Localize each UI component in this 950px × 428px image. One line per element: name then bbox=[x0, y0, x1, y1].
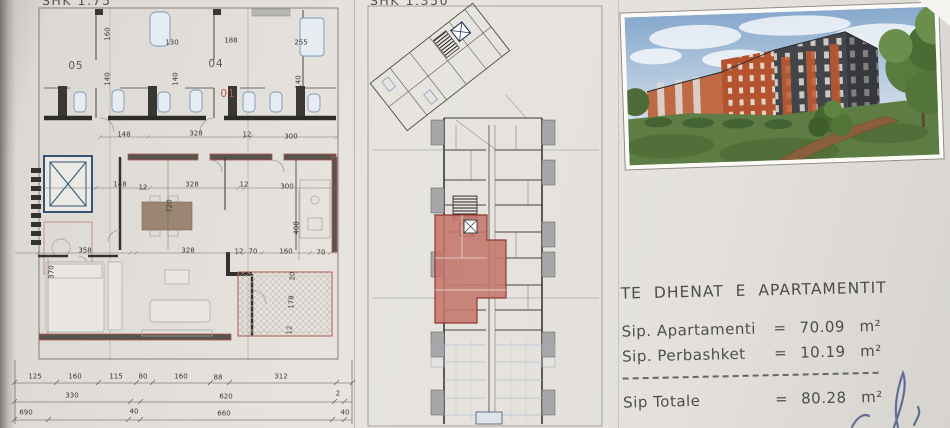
dimension-label: 12 bbox=[235, 249, 244, 256]
left-plan-annotations: 0504011601301882551401401401483281230014… bbox=[0, 0, 356, 428]
dimension-label: 328 bbox=[181, 248, 194, 255]
building-render-photo bbox=[619, 1, 944, 170]
dimension-label: 370 bbox=[49, 265, 56, 278]
info-row-apartamenti: Sip. Apartamenti = 70.09 m² bbox=[621, 315, 939, 340]
building-plan-panel bbox=[356, 0, 616, 428]
dimension-label: 88 bbox=[214, 375, 223, 382]
dimension-label: 160 bbox=[105, 27, 112, 40]
building-plan-drawing bbox=[356, 0, 616, 428]
dimension-label: 140 bbox=[173, 72, 180, 85]
dimension-label: 12 bbox=[287, 326, 294, 335]
room-label: 01 bbox=[220, 89, 235, 100]
highlighted-apartment bbox=[435, 215, 506, 323]
dimension-label: 148 bbox=[113, 182, 126, 189]
divider-dashed-line bbox=[623, 372, 879, 380]
info-value: 70.09 bbox=[799, 317, 855, 336]
sheet-fold-right bbox=[618, 0, 619, 428]
dimension-label: 660 bbox=[217, 411, 230, 418]
equals-sign: = bbox=[775, 390, 801, 409]
angled-wing bbox=[370, 3, 509, 130]
dimension-label: 140 bbox=[105, 72, 112, 85]
dimension-label: 300 bbox=[280, 184, 293, 191]
dimension-label: 690 bbox=[19, 410, 32, 417]
dimension-label: 40 bbox=[130, 409, 139, 416]
dimension-label: 70 bbox=[317, 250, 326, 257]
dimension-label: 620 bbox=[219, 394, 232, 401]
dimension-label: 130 bbox=[165, 40, 178, 47]
dimension-label: 80 bbox=[139, 374, 148, 381]
info-label: Sip. Apartamenti bbox=[621, 319, 773, 340]
dimension-label: 188 bbox=[224, 38, 237, 45]
sheet-fold-left bbox=[354, 0, 355, 428]
equals-sign: = bbox=[774, 344, 800, 363]
page-edge-shadow bbox=[0, 0, 16, 428]
dimension-label: 330 bbox=[65, 393, 78, 400]
info-value: 10.19 bbox=[800, 342, 856, 361]
dimension-label: 312 bbox=[274, 374, 287, 381]
dimension-label: 115 bbox=[109, 374, 122, 381]
equals-sign: = bbox=[773, 319, 799, 338]
apartment-floor-plan-panel: 0504011601301882551401401401483281230014… bbox=[0, 0, 356, 428]
info-label: Sip Totale bbox=[623, 390, 775, 411]
room-label: 05 bbox=[68, 61, 83, 72]
dimension-label: 255 bbox=[294, 40, 307, 47]
dimension-label: 12 bbox=[243, 132, 252, 139]
dimension-label: 328 bbox=[185, 182, 198, 189]
info-label: Sip. Perbashket bbox=[622, 344, 774, 365]
wing-connector bbox=[456, 95, 526, 150]
dimension-label: 358 bbox=[78, 248, 91, 255]
room-label: 04 bbox=[208, 59, 223, 70]
dimension-label: 160 bbox=[279, 249, 292, 256]
dimension-label: 70 bbox=[249, 249, 258, 256]
dimension-label: 300 bbox=[284, 134, 297, 141]
dimension-label: 148 bbox=[117, 132, 130, 139]
info-row-perbashket: Sip. Perbashket = 10.19 m² bbox=[622, 340, 940, 365]
dimension-label: 178 bbox=[289, 295, 296, 308]
info-unit: m² bbox=[860, 340, 940, 360]
dimension-label: 12 bbox=[139, 185, 148, 192]
dimension-label: 125 bbox=[28, 374, 41, 381]
dimension-label: 40 bbox=[341, 410, 350, 417]
dimension-label: 20 bbox=[290, 272, 297, 281]
lower-floors-faded bbox=[431, 340, 555, 424]
dimension-label: 12 bbox=[240, 182, 249, 189]
dimension-label: 328 bbox=[189, 131, 202, 138]
signature-ink-stroke bbox=[848, 370, 948, 428]
dimension-label: 720 bbox=[167, 199, 174, 212]
info-unit: m² bbox=[859, 315, 939, 335]
building-render-illustration bbox=[625, 7, 940, 166]
apartment-info-title: TE DHENAT E APARTAMENTIT bbox=[621, 277, 939, 302]
dimension-label: 160 bbox=[68, 374, 81, 381]
dimension-label: 160 bbox=[174, 374, 187, 381]
dimension-label: 140 bbox=[296, 75, 303, 88]
document-page: SHK 1:75 SHK 1:350 bbox=[0, 0, 950, 428]
dimension-label: 408 bbox=[294, 221, 301, 234]
page-corner bbox=[918, 0, 950, 26]
dimension-label: 2 bbox=[336, 391, 340, 398]
